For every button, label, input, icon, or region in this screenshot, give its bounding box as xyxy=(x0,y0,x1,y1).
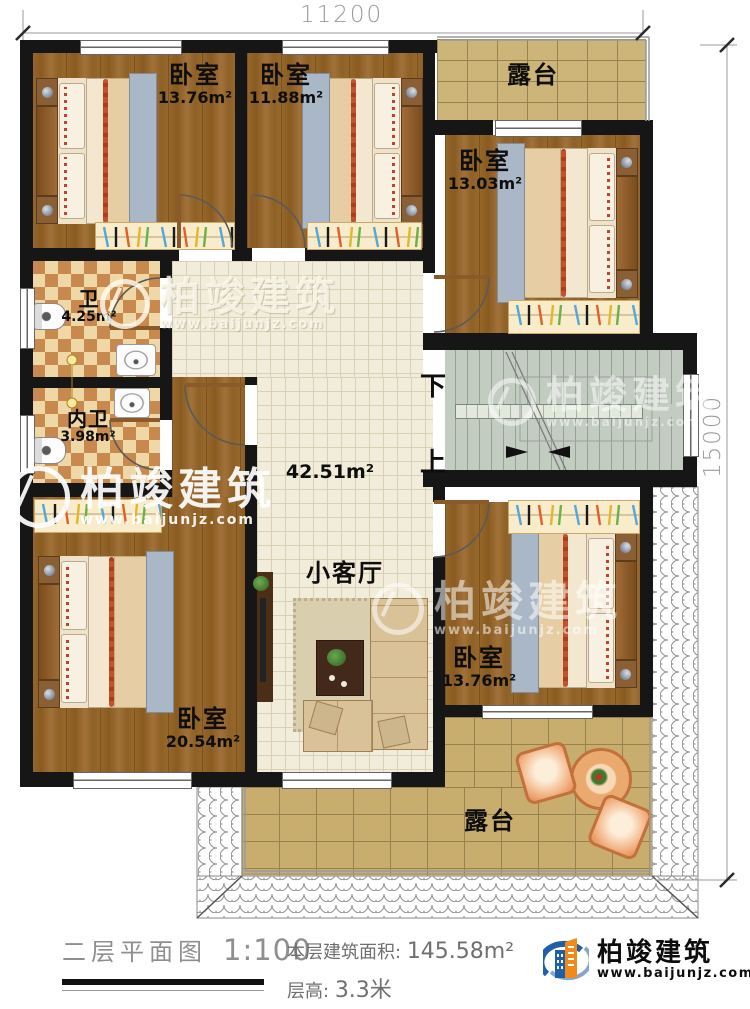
brand-website: www.baijunjz.com xyxy=(597,966,750,983)
stairs-down-label: 下 xyxy=(420,366,446,403)
closet-icon xyxy=(307,222,422,250)
room-label-bedroom-bottom-left: 卧室 20.54m² xyxy=(160,706,246,751)
title-underline-thick xyxy=(62,979,264,985)
room-label-living-room: 小客厅 xyxy=(295,560,395,587)
terrace-glass-door xyxy=(495,120,582,137)
wall-segment xyxy=(640,487,653,705)
window xyxy=(20,415,35,474)
room-label-bedroom-top-right: 卧室 13.03m² xyxy=(443,148,527,193)
closet-icon xyxy=(95,222,235,250)
floor-area-label: 本层建筑面积: xyxy=(287,942,401,963)
wall-segment xyxy=(433,717,445,787)
wall-segment xyxy=(190,772,282,787)
room-label-hall-area: 42.51m² xyxy=(275,462,385,483)
wall-segment xyxy=(433,705,482,717)
wall-segment xyxy=(580,120,653,135)
plant-icon xyxy=(253,576,269,591)
stair-flight-lower xyxy=(455,417,681,470)
dimension-top: 11200 xyxy=(300,2,383,28)
floor-corridor xyxy=(172,377,245,497)
wall-segment xyxy=(245,377,257,385)
brand-logo-block: 柏竣建筑 www.baijunjz.com xyxy=(543,936,750,986)
window xyxy=(20,288,35,349)
wall-segment xyxy=(423,40,435,273)
room-label-bathroom: 卫 4.25m² xyxy=(58,288,120,326)
floor-plan-canvas: 卧室 13.76m² 卧室 11.88m² 卧室 13.03m² 卫 4.25m… xyxy=(0,0,750,1009)
window xyxy=(80,40,182,55)
coffee-table-icon xyxy=(316,640,364,696)
window xyxy=(282,772,392,789)
floor-height-row: 层高: 3.3米 xyxy=(287,972,392,1004)
wall-segment xyxy=(433,487,445,502)
wall-segment xyxy=(160,248,172,278)
wall-segment xyxy=(423,470,697,487)
dimension-right: 15000 xyxy=(700,408,726,478)
bed-icon xyxy=(38,556,173,708)
room-label-terrace-bottom: 露台 xyxy=(455,808,525,835)
wall-segment xyxy=(683,350,697,374)
stair-flight-upper xyxy=(455,350,681,404)
window xyxy=(683,374,699,457)
floor-height-value: 3.3米 xyxy=(335,978,392,1003)
bed-icon xyxy=(512,533,637,688)
stairs-up-label: 上 xyxy=(420,442,446,479)
window xyxy=(282,40,389,55)
brand-name: 柏竣建筑 xyxy=(597,940,750,966)
wall-segment xyxy=(160,328,172,420)
wall-segment xyxy=(683,455,697,470)
wall-segment xyxy=(433,557,445,717)
closet-icon xyxy=(34,499,162,533)
bed-icon xyxy=(36,78,156,224)
brand-logo-icon xyxy=(543,936,589,986)
wall-segment xyxy=(20,40,33,787)
wall-segment xyxy=(232,248,252,261)
plan-title: 二层平面图 xyxy=(62,932,207,967)
window xyxy=(482,705,593,719)
wall-segment xyxy=(591,705,653,717)
closet-icon xyxy=(508,300,640,334)
room-label-bathroom-inner: 内卫 3.98m² xyxy=(56,408,120,446)
wall-segment xyxy=(20,772,74,787)
title-underline-thin xyxy=(62,990,264,991)
wall-segment xyxy=(640,120,653,350)
closet-icon xyxy=(508,500,640,534)
wall-segment xyxy=(160,470,172,483)
plan-title-block: 二层平面图 1:100 xyxy=(62,932,312,967)
floor-height-label: 层高: xyxy=(287,981,329,1002)
floor-area-value: 145.58m² xyxy=(407,939,514,964)
wall-segment xyxy=(245,445,257,772)
wall-segment xyxy=(20,483,172,497)
floor-area-row: 本层建筑面积: 145.58m² xyxy=(287,938,514,964)
room-label-terrace-top: 露台 xyxy=(498,62,568,89)
sink-icon xyxy=(116,344,156,376)
wall-segment xyxy=(433,120,493,135)
window xyxy=(73,772,192,789)
room-label-bedroom-bottom-right: 卧室 13.76m² xyxy=(436,645,522,690)
tv-icon xyxy=(260,598,266,682)
floor-hall-upper xyxy=(172,261,423,377)
wall-segment xyxy=(423,333,697,350)
wall-segment xyxy=(32,377,160,388)
room-label-bedroom-top-middle: 卧室 11.88m² xyxy=(248,62,324,107)
room-label-bedroom-top-left: 卧室 13.76m² xyxy=(152,62,238,107)
cushion-icon xyxy=(377,715,410,748)
stair-handrail xyxy=(455,404,643,419)
